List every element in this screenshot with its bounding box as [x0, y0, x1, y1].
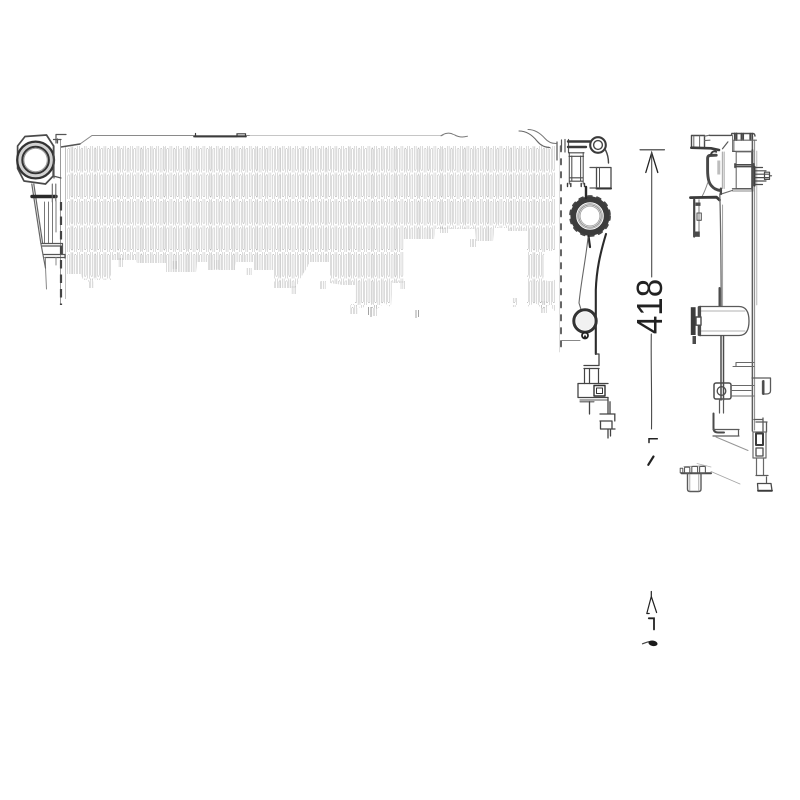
svg-text:418: 418: [631, 279, 671, 334]
